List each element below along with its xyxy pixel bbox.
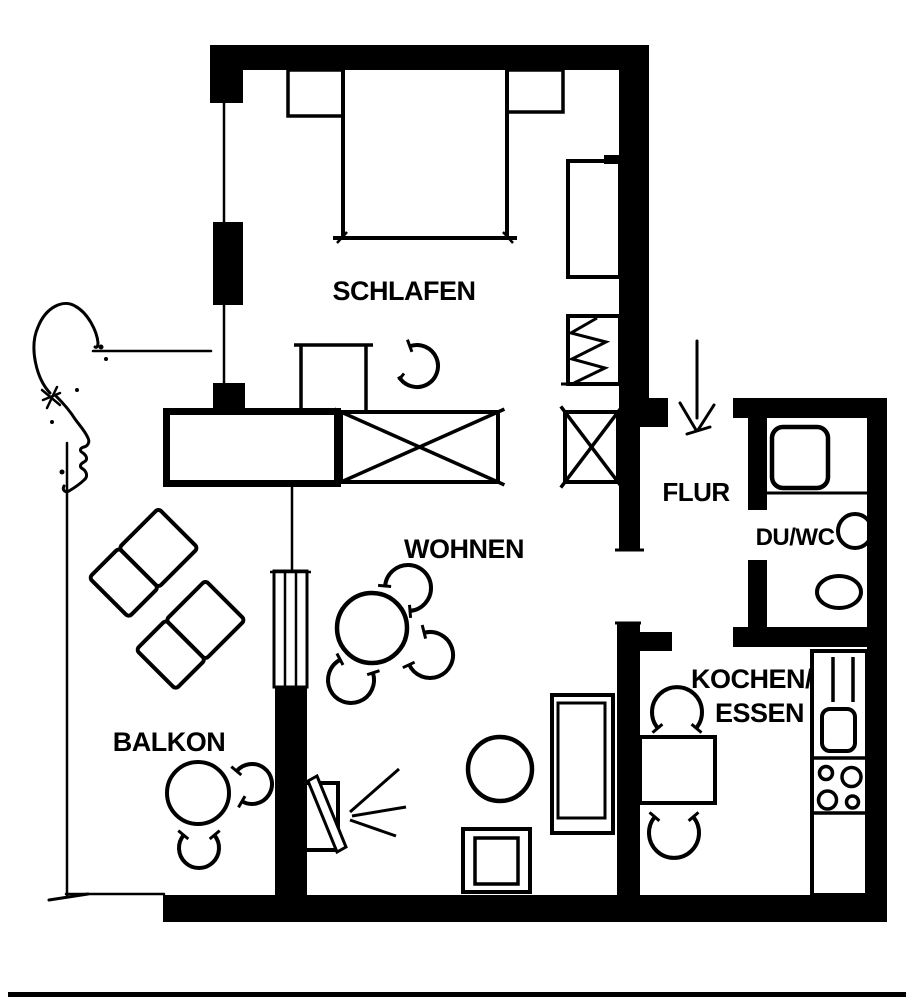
label-flur: FLUR	[662, 477, 730, 507]
speaker-panel	[308, 776, 346, 852]
desk-chair	[399, 340, 438, 387]
sofa	[552, 695, 613, 833]
coffee-table	[468, 737, 532, 801]
sideboard-room-divider	[167, 412, 338, 484]
page-bottom-border	[8, 992, 906, 997]
x-wardrobe-small	[561, 406, 622, 487]
living-room-furniture	[305, 565, 613, 892]
nightstand-left	[288, 70, 343, 116]
lounger-2	[136, 580, 245, 689]
floor-plan-svg: SCHLAFEN WOHNEN BALKON FLUR DU/WC KOCHEN…	[0, 0, 914, 1000]
entrance-arrow	[680, 341, 714, 434]
doodle-dots	[50, 345, 108, 475]
speaker-with-rays	[305, 769, 406, 852]
x-wardrobe-large	[335, 409, 505, 485]
sink	[822, 709, 855, 751]
wall-bath-left-upper	[748, 418, 767, 510]
toilet	[817, 576, 861, 608]
wall-right-bedroom-upper	[619, 45, 649, 400]
shower-tray	[772, 427, 828, 488]
wall-bath-bottom	[733, 627, 887, 647]
wall-window-pillar	[213, 383, 245, 412]
tall-cabinet	[568, 161, 620, 277]
balcony-chair-right	[231, 764, 272, 807]
wall-entry-stub	[640, 398, 668, 427]
label-kochen: KOCHEN/	[691, 664, 813, 694]
wall-corner-pillar	[210, 70, 243, 103]
wall-bath-left-lower	[748, 560, 767, 630]
cooktop-burners	[819, 767, 862, 810]
bathroom-fixtures	[767, 427, 872, 608]
desk	[294, 344, 373, 412]
kitchen-chair-bottom	[649, 812, 699, 858]
nightstand-right	[507, 70, 563, 112]
sound-ray-1	[350, 769, 399, 812]
balcony-chair-bottom	[178, 831, 219, 868]
dining-table	[337, 593, 407, 663]
floor-plan-page: SCHLAFEN WOHNEN BALKON FLUR DU/WC KOCHEN…	[0, 0, 914, 1000]
doodle-profile	[56, 396, 89, 492]
room-labels: SCHLAFEN WOHNEN BALKON FLUR DU/WC KOCHEN…	[113, 276, 835, 757]
washbasin	[838, 514, 872, 548]
sound-ray-2	[352, 807, 406, 816]
label-wohnen: WOHNEN	[404, 534, 524, 564]
wall-right-bedroom-lower	[619, 400, 640, 551]
wall-bottom	[163, 895, 887, 922]
wall-right-main	[867, 398, 887, 897]
double-bed	[343, 68, 507, 238]
balcony-table	[167, 762, 229, 824]
dining-chair-right	[403, 625, 453, 678]
walls	[8, 45, 906, 997]
wall-bath-top	[733, 398, 887, 418]
wall-kitchen-left	[617, 623, 640, 897]
doodle-loop	[34, 304, 98, 393]
kitchen-table	[640, 737, 715, 803]
tv-armchair	[463, 829, 530, 892]
sound-ray-3	[350, 820, 396, 836]
label-balkon: BALKON	[113, 727, 226, 757]
balcony-furniture	[89, 508, 272, 868]
wall-window-pier	[213, 222, 243, 305]
balcony-door	[270, 571, 311, 687]
label-schlafen: SCHLAFEN	[333, 276, 476, 306]
wall-balcony	[275, 687, 307, 897]
lounger-1	[89, 508, 198, 617]
zigzag-symbol	[571, 318, 606, 383]
label-essen: ESSEN	[715, 698, 804, 728]
wall-kitchen-stub	[640, 632, 672, 651]
label-du-wc: DU/WC	[756, 524, 835, 551]
